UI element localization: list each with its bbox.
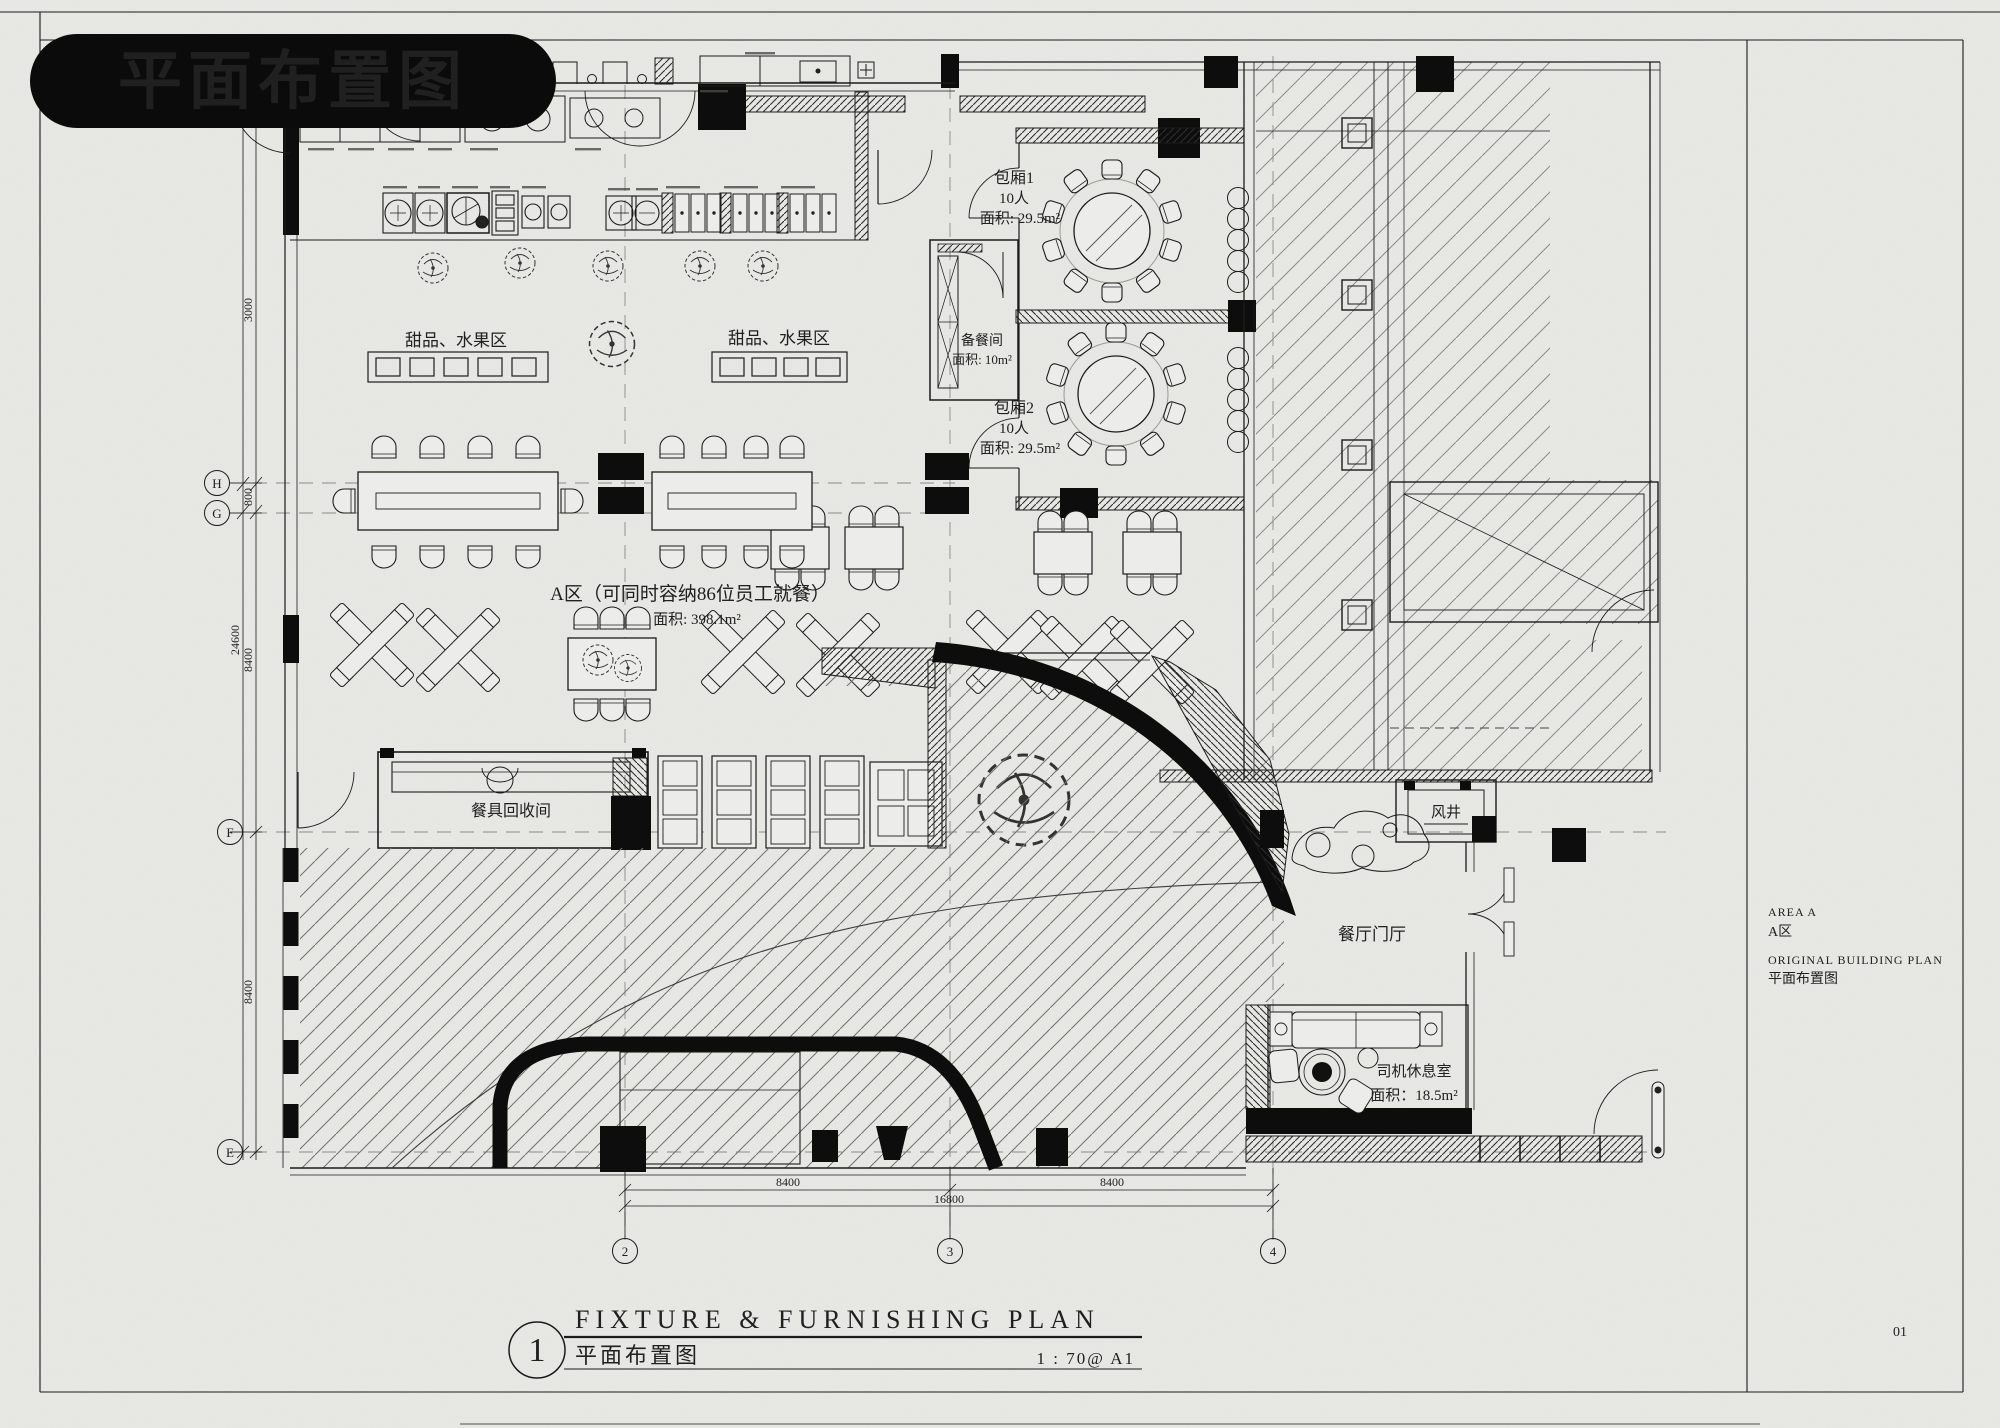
room2-capacity-label: 10人 [999, 420, 1029, 437]
kitchen-cabinet-trio [777, 193, 836, 233]
dessert-area-label-right: 甜品、水果区 [728, 329, 830, 348]
center-table [568, 607, 656, 721]
column [600, 1126, 646, 1172]
zone-a-title: A区（可同时容纳86位员工就餐） [550, 583, 830, 605]
dim-left-3: 8400 [241, 648, 255, 672]
column [1228, 300, 1256, 332]
kitchen-cabinet-trio [662, 193, 721, 233]
dim-left-2: 800 [241, 488, 255, 506]
column [1472, 816, 1496, 842]
page-number: 01 [1893, 1325, 1907, 1340]
prep-room-area-label: 面积: 10m² [952, 352, 1012, 367]
title-badge: 平面布置图 [30, 34, 556, 128]
driver-room-area-label: 面积：18.5m² [1370, 1087, 1458, 1104]
title-badge-text: 平面布置图 [118, 45, 468, 117]
armchair [1268, 1049, 1299, 1084]
prep-room-name-label: 备餐间 [961, 332, 1003, 349]
title-cn: 平面布置图 [575, 1343, 700, 1368]
room1-name-label: 包厢1 [994, 169, 1034, 187]
wall-band [928, 660, 946, 848]
side-note-plan-cn: 平面布置图 [1768, 971, 1838, 987]
dim-left-1: 3000 [241, 298, 255, 322]
column [611, 796, 651, 850]
drawing-scale: 1 : 70@ A1 [1037, 1349, 1135, 1368]
axis-left-4: E [226, 1145, 234, 1160]
column [598, 453, 644, 480]
room1-area-label: 面积: 29.5m² [980, 210, 1061, 227]
kitchen-cabinet-trio [720, 193, 779, 233]
wall-band [855, 92, 868, 240]
axis-left-3: F [226, 825, 233, 840]
column [1036, 1128, 1068, 1166]
column [1552, 828, 1586, 862]
column [1416, 56, 1454, 92]
column [1260, 810, 1284, 848]
room1-capacity-label: 10人 [999, 190, 1029, 207]
axis-bottom-1: 2 [622, 1244, 629, 1259]
title-en: FIXTURE & FURNISHING PLAN [575, 1305, 1100, 1334]
dim-bottom-2: 8400 [1100, 1175, 1124, 1189]
column [1204, 56, 1238, 88]
foyer-label: 餐厅门厅 [1338, 925, 1406, 944]
column [925, 453, 969, 480]
floor-plan-canvas: 3000 800 8400 8400 24600 8400 8400 16800… [0, 0, 2000, 1428]
buffet-cabinets [658, 756, 942, 848]
air-shaft-label: 风井 [1431, 804, 1461, 821]
axis-left-1: H [212, 476, 221, 491]
detail-number: 1 [529, 1332, 546, 1369]
side-note-area-en: AREA A [1768, 905, 1817, 919]
wall-band [1016, 310, 1244, 323]
wall-band [1016, 497, 1244, 510]
axis-bottom-3: 4 [1270, 1244, 1277, 1259]
wall-band [960, 96, 1145, 112]
zone-a-area: 面积: 398.1m² [653, 611, 741, 628]
dim-left-overall: 24600 [228, 625, 242, 655]
side-note-plan-en: ORIGINAL BUILDING PLAN [1768, 953, 1943, 967]
room2-name-label: 包厢2 [994, 399, 1034, 417]
room2-area-label: 面积: 29.5m² [980, 440, 1061, 457]
column [812, 1130, 838, 1162]
wall-band [1016, 128, 1244, 143]
dish-return-label: 餐具回收间 [471, 802, 551, 820]
dim-left-4: 8400 [241, 980, 255, 1004]
axis-bottom-2: 3 [947, 1244, 954, 1259]
driver-room-name-label: 司机休息室 [1376, 1063, 1451, 1080]
dessert-area-label-left: 甜品、水果区 [405, 331, 507, 350]
dim-bottom-overall: 16800 [934, 1192, 964, 1206]
column [925, 487, 969, 514]
drawing-sheet: 3000 800 8400 8400 24600 8400 8400 16800… [0, 0, 2000, 1428]
dim-bottom-1: 8400 [776, 1175, 800, 1189]
column [598, 487, 644, 514]
side-note-area-cn: A区 [1768, 924, 1792, 940]
axis-left-2: G [212, 506, 221, 521]
wall-band [745, 96, 905, 112]
wall [283, 615, 299, 663]
